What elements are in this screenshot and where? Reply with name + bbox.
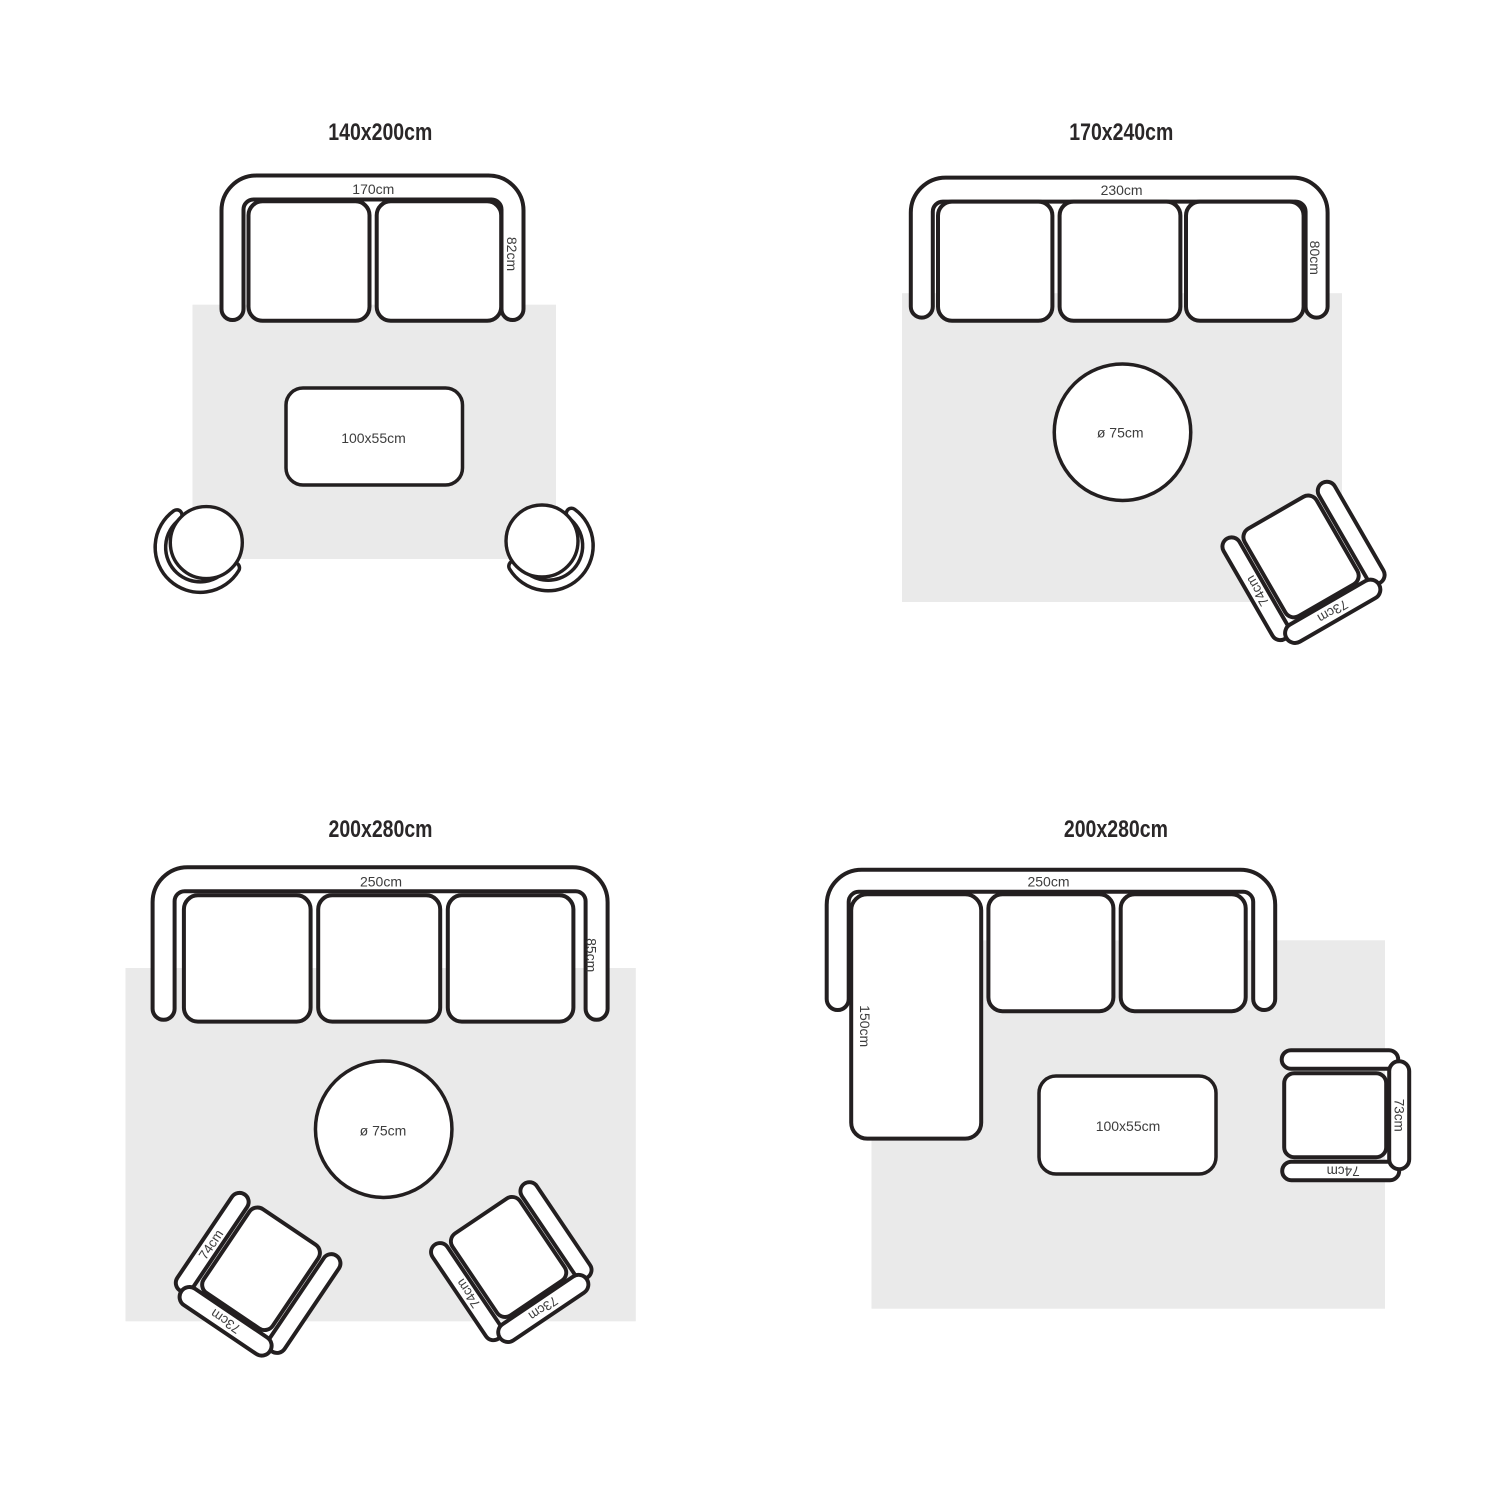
svg-text:250cm: 250cm [360, 873, 402, 889]
svg-text:250cm: 250cm [1027, 874, 1069, 890]
svg-text:200x280cm: 200x280cm [1064, 816, 1168, 843]
svg-text:230cm: 230cm [1101, 182, 1143, 198]
svg-text:150cm: 150cm [857, 1005, 873, 1047]
svg-text:85cm: 85cm [584, 938, 600, 972]
svg-text:ø 75cm: ø 75cm [1097, 425, 1144, 441]
svg-text:82cm: 82cm [504, 237, 520, 271]
svg-text:200x280cm: 200x280cm [329, 816, 433, 843]
svg-text:80cm: 80cm [1307, 241, 1323, 275]
svg-text:100x55cm: 100x55cm [1096, 1118, 1161, 1134]
svg-text:100x55cm: 100x55cm [341, 430, 406, 446]
svg-text:170cm: 170cm [352, 181, 394, 197]
svg-text:ø 75cm: ø 75cm [360, 1123, 407, 1139]
svg-text:170x240cm: 170x240cm [1069, 119, 1173, 146]
svg-text:140x200cm: 140x200cm [328, 119, 432, 146]
